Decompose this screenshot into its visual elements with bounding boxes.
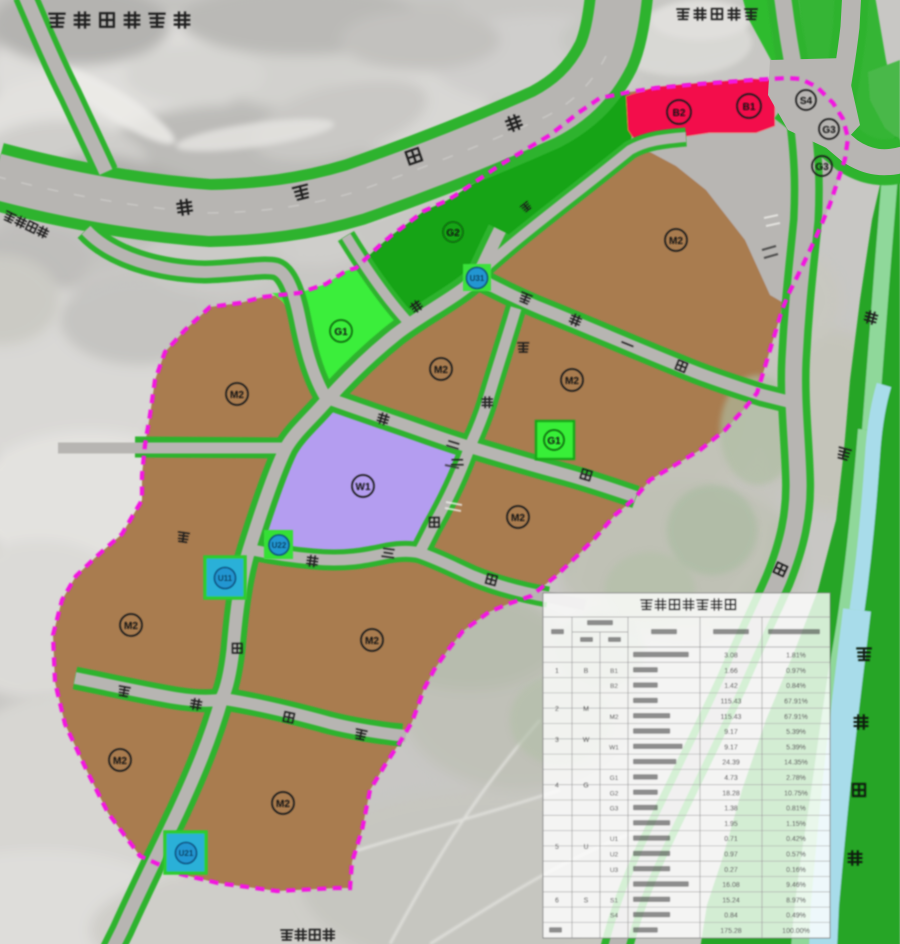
svg-text:B: B xyxy=(584,668,589,675)
svg-text:W1: W1 xyxy=(356,482,371,493)
svg-text:0.16%: 0.16% xyxy=(786,867,806,874)
svg-text:G1: G1 xyxy=(547,436,561,447)
svg-text:1.15%: 1.15% xyxy=(786,821,806,828)
svg-text:0.71: 0.71 xyxy=(724,836,738,843)
svg-text:3.08: 3.08 xyxy=(724,653,738,660)
svg-text:G3: G3 xyxy=(822,125,836,136)
svg-text:3: 3 xyxy=(555,737,559,744)
svg-text:9.46%: 9.46% xyxy=(786,882,806,889)
svg-text:M2: M2 xyxy=(669,236,683,247)
svg-text:M2: M2 xyxy=(434,365,448,376)
svg-text:5.39%: 5.39% xyxy=(786,729,806,736)
svg-text:175.28: 175.28 xyxy=(720,928,742,935)
svg-text:8.97%: 8.97% xyxy=(786,897,806,904)
svg-text:S1: S1 xyxy=(610,897,618,904)
svg-text:0.97: 0.97 xyxy=(724,852,738,859)
svg-text:U: U xyxy=(583,844,588,851)
svg-text:G1: G1 xyxy=(610,775,619,782)
svg-text:S4: S4 xyxy=(610,913,618,920)
svg-text:24.39: 24.39 xyxy=(722,760,740,767)
svg-text:G2: G2 xyxy=(610,790,619,797)
svg-text:1.38: 1.38 xyxy=(724,806,738,813)
svg-text:0.57%: 0.57% xyxy=(786,852,806,859)
svg-text:2: 2 xyxy=(555,706,559,713)
svg-text:B1: B1 xyxy=(743,102,756,113)
svg-text:100.00%: 100.00% xyxy=(782,928,810,935)
svg-text:67.91%: 67.91% xyxy=(784,714,808,721)
svg-text:15.24: 15.24 xyxy=(722,897,740,904)
svg-text:B2: B2 xyxy=(673,108,686,119)
svg-text:G1: G1 xyxy=(334,327,348,338)
svg-text:M2: M2 xyxy=(365,636,379,647)
svg-text:U22: U22 xyxy=(272,541,287,550)
svg-text:10.75%: 10.75% xyxy=(784,790,808,797)
svg-text:16.08: 16.08 xyxy=(722,882,740,889)
svg-text:U2: U2 xyxy=(610,852,619,859)
svg-text:M2: M2 xyxy=(511,513,525,524)
svg-text:5: 5 xyxy=(555,844,559,851)
svg-text:M: M xyxy=(583,706,589,713)
svg-text:M2: M2 xyxy=(113,756,127,767)
svg-text:U21: U21 xyxy=(179,849,194,858)
svg-text:115.43: 115.43 xyxy=(721,699,742,706)
svg-text:M2: M2 xyxy=(230,390,244,401)
svg-text:G3: G3 xyxy=(610,806,619,813)
svg-text:U11: U11 xyxy=(218,574,233,583)
svg-text:M2: M2 xyxy=(609,714,618,721)
svg-text:6: 6 xyxy=(555,898,559,905)
svg-text:2.78%: 2.78% xyxy=(786,775,806,782)
svg-text:U31: U31 xyxy=(470,274,485,283)
svg-text:1.81%: 1.81% xyxy=(786,653,806,660)
svg-text:1: 1 xyxy=(555,668,559,675)
svg-text:0.97%: 0.97% xyxy=(786,668,806,675)
svg-text:G3: G3 xyxy=(815,162,829,173)
svg-text:4: 4 xyxy=(555,783,559,790)
svg-text:U1: U1 xyxy=(610,836,619,843)
svg-text:G2: G2 xyxy=(446,228,460,239)
svg-text:W1: W1 xyxy=(609,744,619,751)
svg-text:1.66: 1.66 xyxy=(724,668,738,675)
svg-text:M2: M2 xyxy=(124,621,138,632)
svg-text:B1: B1 xyxy=(610,668,618,675)
svg-text:0.27: 0.27 xyxy=(724,867,738,874)
svg-text:9.17: 9.17 xyxy=(724,729,738,736)
svg-text:0.49%: 0.49% xyxy=(786,913,806,920)
svg-text:1.95: 1.95 xyxy=(724,821,738,828)
svg-text:5.39%: 5.39% xyxy=(786,744,806,751)
svg-text:M2: M2 xyxy=(276,799,290,810)
svg-text:G: G xyxy=(583,783,588,790)
svg-text:0.84: 0.84 xyxy=(724,913,738,920)
svg-text:0.42%: 0.42% xyxy=(786,836,806,843)
svg-text:14.35%: 14.35% xyxy=(784,760,808,767)
svg-text:S4: S4 xyxy=(800,96,813,107)
svg-text:B2: B2 xyxy=(610,683,618,690)
svg-text:M2: M2 xyxy=(565,376,579,387)
svg-text:9.17: 9.17 xyxy=(724,744,738,751)
svg-text:18.28: 18.28 xyxy=(722,790,740,797)
svg-text:67.91%: 67.91% xyxy=(784,699,808,706)
svg-text:4.73: 4.73 xyxy=(724,775,738,782)
svg-text:115.43: 115.43 xyxy=(721,714,742,721)
svg-text:W: W xyxy=(583,737,590,744)
svg-text:1.42: 1.42 xyxy=(724,683,738,690)
svg-text:U3: U3 xyxy=(610,867,619,874)
svg-text:0.84%: 0.84% xyxy=(786,683,806,690)
svg-text:0.81%: 0.81% xyxy=(786,806,806,813)
svg-text:S: S xyxy=(584,898,589,905)
